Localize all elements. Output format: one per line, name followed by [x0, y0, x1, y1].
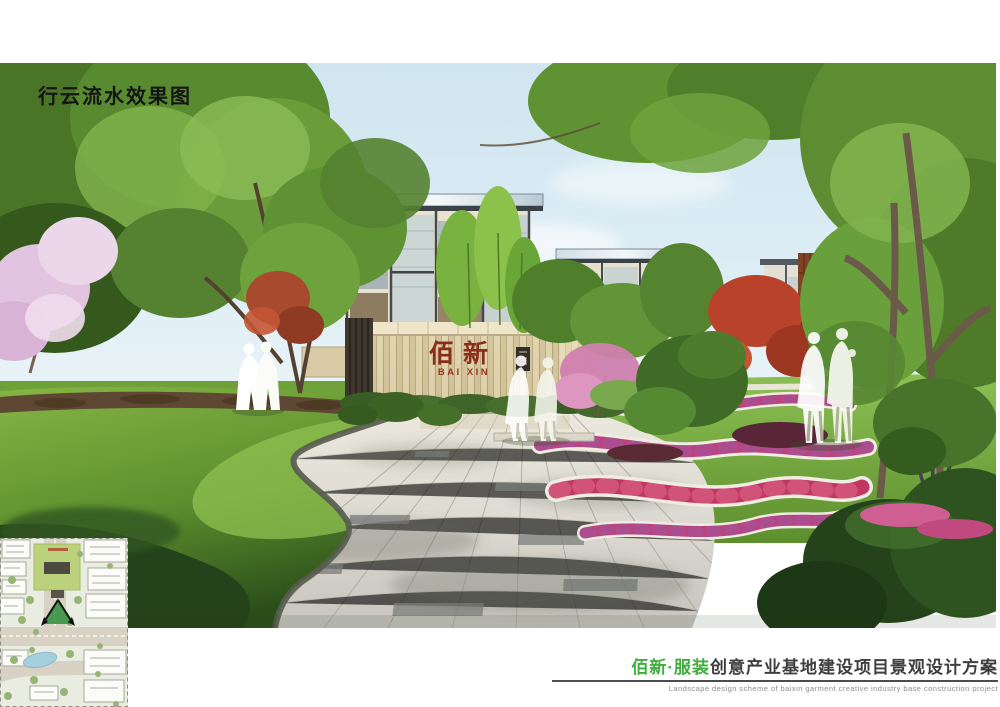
site-plan-inset: [0, 538, 128, 707]
rendering-scene: 佰新 BAI XIN: [0, 63, 996, 628]
project-caption: 佰新·服装创意产业基地建设项目景观设计方案 Landscape design s…: [538, 658, 998, 693]
project-title-highlight: 佰新·服装: [631, 658, 710, 677]
burgundy-shrub: [607, 444, 683, 462]
caption-divider: [552, 680, 998, 682]
inset-gate-mark: [51, 590, 64, 598]
project-title-zh: 佰新·服装创意产业基地建设项目景观设计方案: [538, 658, 998, 678]
presentation-board: 行云流水效果图: [0, 0, 1000, 707]
gate-sign-latin: BAI XIN: [438, 367, 490, 378]
rendering-image: 佰新 BAI XIN: [0, 63, 996, 628]
gate-sign-chinese: 佰新: [429, 339, 497, 368]
project-title-rest: 创意产业基地建设项目景观设计方案: [710, 658, 998, 677]
project-subtitle-en: Landscape design scheme of baixin garmen…: [538, 684, 998, 693]
page-title: 行云流水效果图: [38, 80, 192, 109]
